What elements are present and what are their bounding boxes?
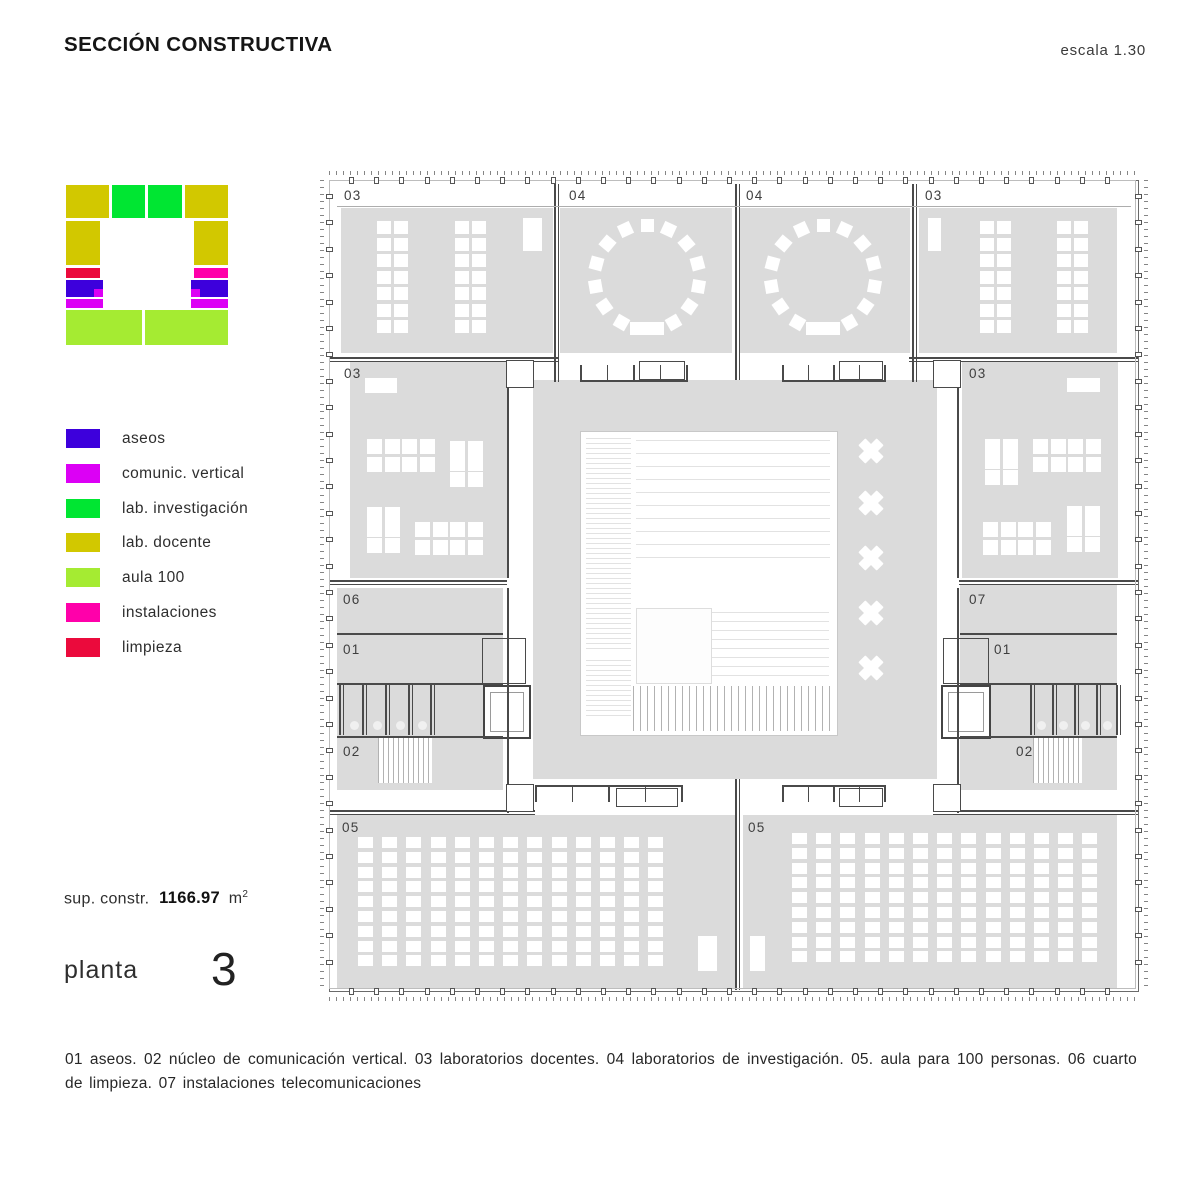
facade-mullion [525, 177, 530, 184]
facade-mullion [399, 988, 404, 995]
facade-mullion [1080, 988, 1085, 995]
sheet-title: SECCIÓN CONSTRUCTIVA [64, 33, 332, 57]
facade-mullion [1055, 988, 1060, 995]
facade-mullion [803, 177, 808, 184]
facade-mullion [326, 960, 333, 965]
facade-mullion [1135, 722, 1142, 727]
legend-swatch-limpieza [66, 638, 100, 657]
facade-mullion [651, 177, 656, 184]
facade-mullion [853, 177, 858, 184]
legend-item-limpieza: limpieza [66, 638, 326, 658]
facade-mullion [1135, 405, 1142, 410]
facade-mullion [525, 988, 530, 995]
facade-mullion [727, 177, 732, 184]
facade-mullion [1135, 194, 1142, 199]
facade-mullion [500, 988, 505, 995]
facade-mullion [702, 177, 707, 184]
key-plan-block-comunic [191, 289, 200, 297]
facade-mullion [1105, 988, 1110, 995]
facade-mullion [954, 177, 959, 184]
legend-item-invest: lab. investigación [66, 499, 326, 519]
stats-prefix: sup. constr. [64, 890, 149, 907]
facade-mullion [326, 484, 333, 489]
legend-label: comunic. vertical [122, 465, 244, 483]
scale-note: escala 1.30 [1020, 42, 1146, 59]
facade-mullion [500, 177, 505, 184]
floor-number: 3 [211, 942, 237, 996]
facade-mullion [326, 405, 333, 410]
facade-mullion [1055, 177, 1060, 184]
floor-label: planta [64, 956, 138, 985]
plan-border-inner [329, 180, 1136, 989]
facade-mullion [326, 537, 333, 542]
facade-mullion [326, 722, 333, 727]
facade-mullion [1135, 458, 1142, 463]
facade-mullion [326, 273, 333, 278]
dimension-ticks [1144, 180, 1148, 992]
facade-mullion [1135, 854, 1142, 859]
legend-swatch-aula [66, 568, 100, 587]
facade-mullion [1135, 960, 1142, 965]
facade-mullion [475, 988, 480, 995]
legend-swatch-docente [66, 533, 100, 552]
facade-mullion [777, 177, 782, 184]
facade-mullion [374, 177, 379, 184]
facade-mullion [326, 828, 333, 833]
facade-mullion [929, 988, 934, 995]
facade-mullion [326, 643, 333, 648]
facade-mullion [1135, 696, 1142, 701]
key-plan-block-comunic [94, 289, 103, 297]
key-plan-block-docente [66, 221, 100, 265]
legend-swatch-invest [66, 499, 100, 518]
facade-mullion [551, 177, 556, 184]
dimension-ticks [320, 180, 324, 992]
floor-plan: 0304040303030607010102020505 [329, 180, 1139, 992]
facade-mullion [828, 177, 833, 184]
facade-mullion [326, 247, 333, 252]
facade-mullion [1135, 643, 1142, 648]
facade-mullion [1135, 669, 1142, 674]
facade-mullion [1135, 880, 1142, 885]
facade-mullion [326, 220, 333, 225]
facade-mullion [1135, 379, 1142, 384]
legend-item-aula: aula 100 [66, 568, 326, 588]
key-plan-block-invest [112, 185, 145, 218]
facade-mullion [425, 988, 430, 995]
facade-mullion [777, 988, 782, 995]
facade-mullion [626, 177, 631, 184]
facade-mullion [1135, 564, 1142, 569]
key-plan-block-docente [194, 221, 228, 265]
key-plan-block-docente [185, 185, 228, 218]
facade-mullion [1135, 326, 1142, 331]
key-plan-block-docente [66, 185, 109, 218]
facade-mullion [903, 988, 908, 995]
facade-mullion [1135, 590, 1142, 595]
facade-mullion [677, 988, 682, 995]
key-plan-block-comunic [191, 299, 228, 308]
legend-label: instalaciones [122, 604, 217, 622]
facade-mullion [1135, 247, 1142, 252]
dimension-ticks [329, 997, 1139, 1001]
facade-mullion [626, 988, 631, 995]
stats-sup: 2 [242, 889, 248, 900]
facade-mullion [727, 988, 732, 995]
facade-mullion [903, 177, 908, 184]
facade-mullion [601, 988, 606, 995]
key-plan-block-comunic [66, 299, 103, 308]
facade-mullion [374, 988, 379, 995]
legend-swatch-instal [66, 603, 100, 622]
facade-mullion [1135, 748, 1142, 753]
facade-mullion [1135, 616, 1142, 621]
legend-swatch-aseos [66, 429, 100, 448]
facade-mullion [1135, 775, 1142, 780]
facade-mullion [929, 177, 934, 184]
facade-mullion [1029, 988, 1034, 995]
facade-mullion [878, 177, 883, 184]
legend-label: aseos [122, 430, 165, 448]
facade-mullion [1135, 484, 1142, 489]
facade-mullion [1135, 511, 1142, 516]
facade-mullion [326, 880, 333, 885]
facade-mullion [979, 177, 984, 184]
key-plan-block-aula [66, 310, 142, 345]
facade-mullion [979, 988, 984, 995]
facade-mullion [878, 988, 883, 995]
facade-mullion [326, 854, 333, 859]
facade-mullion [326, 564, 333, 569]
facade-mullion [1135, 537, 1142, 542]
legend-item-aseos: aseos [66, 429, 326, 449]
stats-value: 1166.97 [159, 889, 220, 907]
facade-mullion [475, 177, 480, 184]
key-plan-block-limpieza [66, 268, 100, 278]
facade-mullion [399, 177, 404, 184]
facade-mullion [1080, 177, 1085, 184]
facade-mullion [828, 988, 833, 995]
facade-mullion [326, 696, 333, 701]
stats-unit: m [229, 890, 243, 907]
facade-mullion [326, 379, 333, 384]
drawing-sheet: SECCIÓN CONSTRUCTIVA escala 1.30 aseosco… [0, 0, 1200, 1200]
legend-item-instal: instalaciones [66, 603, 326, 623]
facade-mullion [326, 511, 333, 516]
facade-mullion [1105, 177, 1110, 184]
facade-mullion [326, 458, 333, 463]
room-index-caption: 01 aseos. 02 núcleo de comunicación vert… [65, 1048, 1137, 1096]
facade-mullion [954, 988, 959, 995]
facade-mullion [326, 432, 333, 437]
legend-item-docente: lab. docente [66, 533, 326, 553]
facade-mullion [1135, 907, 1142, 912]
facade-mullion [326, 352, 333, 357]
area-stats: sup. constr. 1166.97 m2 [64, 889, 248, 908]
key-plan-block-instal [194, 268, 228, 278]
facade-mullion [326, 801, 333, 806]
facade-mullion [1135, 352, 1142, 357]
facade-mullion [803, 988, 808, 995]
key-plan-block-aula [145, 310, 228, 345]
dimension-ticks [329, 171, 1139, 175]
facade-mullion [752, 988, 757, 995]
facade-mullion [1135, 220, 1142, 225]
facade-mullion [677, 177, 682, 184]
legend-label: aula 100 [122, 569, 185, 587]
facade-mullion [450, 988, 455, 995]
facade-mullion [326, 775, 333, 780]
facade-mullion [326, 194, 333, 199]
facade-mullion [576, 988, 581, 995]
key-plan [66, 183, 228, 345]
legend-label: lab. docente [122, 534, 211, 552]
facade-mullion [326, 590, 333, 595]
facade-mullion [1135, 933, 1142, 938]
facade-mullion [450, 177, 455, 184]
facade-mullion [702, 988, 707, 995]
facade-mullion [326, 748, 333, 753]
facade-mullion [1029, 177, 1034, 184]
legend-item-comunic: comunic. vertical [66, 464, 326, 484]
facade-mullion [349, 177, 354, 184]
facade-mullion [1135, 828, 1142, 833]
facade-mullion [853, 988, 858, 995]
facade-mullion [326, 616, 333, 621]
facade-mullion [326, 300, 333, 305]
facade-mullion [1135, 801, 1142, 806]
facade-mullion [551, 988, 556, 995]
facade-mullion [326, 669, 333, 674]
key-plan-block-invest [148, 185, 182, 218]
facade-mullion [349, 988, 354, 995]
facade-mullion [576, 177, 581, 184]
facade-mullion [326, 326, 333, 331]
legend-swatch-comunic [66, 464, 100, 483]
facade-mullion [1135, 273, 1142, 278]
facade-mullion [326, 907, 333, 912]
facade-mullion [326, 933, 333, 938]
facade-mullion [1004, 177, 1009, 184]
facade-mullion [601, 177, 606, 184]
facade-mullion [1004, 988, 1009, 995]
facade-mullion [651, 988, 656, 995]
facade-mullion [425, 177, 430, 184]
facade-mullion [752, 177, 757, 184]
facade-mullion [1135, 432, 1142, 437]
legend-label: limpieza [122, 639, 182, 657]
facade-mullion [1135, 300, 1142, 305]
legend-label: lab. investigación [122, 500, 248, 518]
